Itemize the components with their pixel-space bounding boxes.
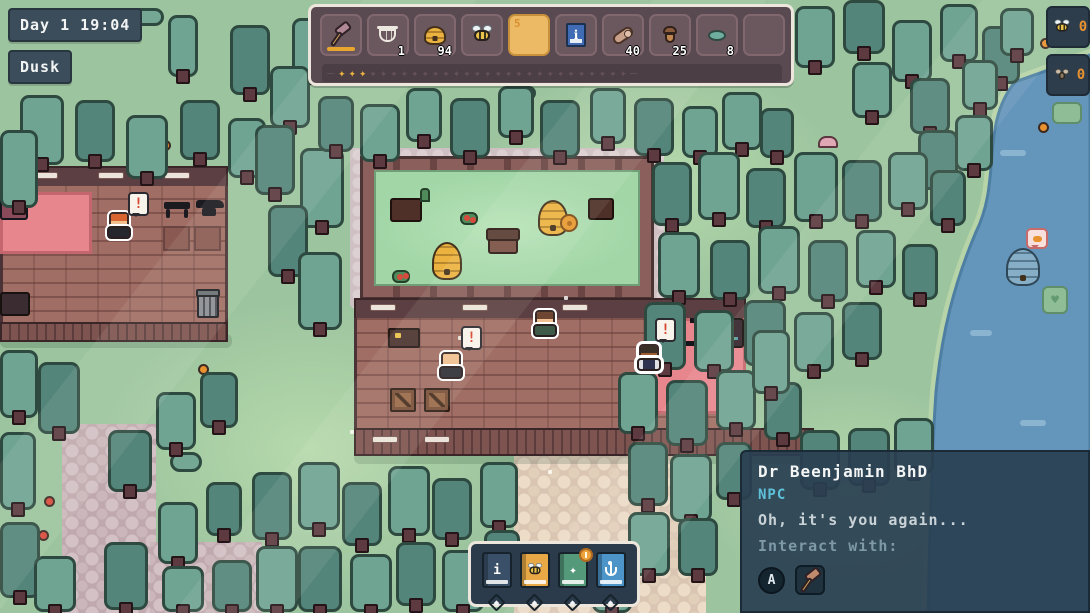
- bee-pip: ✦: [568, 67, 575, 79]
- cart[interactable]: [0, 292, 30, 316]
- table-icon[interactable]: [164, 202, 190, 209]
- tree: [498, 86, 534, 138]
- tree: [156, 392, 196, 450]
- trash-can[interactable]: [197, 292, 219, 318]
- tree: [694, 310, 734, 372]
- tree: [34, 556, 76, 612]
- tree: [808, 240, 848, 302]
- bee-pip: ✦: [401, 67, 408, 79]
- bee-icon: [469, 25, 495, 45]
- tree: [910, 78, 950, 134]
- bee-log-button[interactable]: 0: [1046, 6, 1090, 48]
- tree: [746, 168, 786, 228]
- tree: [350, 554, 392, 612]
- anvil-icon[interactable]: [196, 200, 224, 208]
- tree: [0, 350, 38, 418]
- tree: [256, 546, 298, 612]
- orange-flower: [1038, 122, 1049, 133]
- book-hotbar: i✦: [468, 541, 640, 607]
- wooden-beehive-box[interactable]: [488, 228, 518, 254]
- bee-pip: ✦: [390, 67, 397, 79]
- day-phase-badge: Dusk: [8, 50, 72, 84]
- bee-pip: ✦: [505, 67, 512, 79]
- keybind-diamond: [487, 593, 505, 611]
- item-count: 25: [673, 44, 687, 58]
- workbench[interactable]: [390, 198, 422, 222]
- info-glyph: i: [493, 563, 501, 578]
- tree: [666, 380, 708, 446]
- tree: [450, 98, 490, 158]
- tree: [794, 312, 834, 372]
- tree: [843, 0, 885, 54]
- tree: [716, 370, 756, 430]
- tree: [212, 560, 252, 612]
- item-count: 94: [438, 44, 452, 58]
- character-brownhair-npc[interactable]: [532, 310, 558, 342]
- table-leg: [166, 209, 170, 218]
- tree: [104, 542, 148, 610]
- bee-pip: ✦: [536, 67, 543, 79]
- tree: [200, 372, 238, 428]
- tree: [230, 25, 270, 95]
- tree: [0, 130, 38, 208]
- tree: [540, 100, 580, 158]
- info-book[interactable]: i: [482, 552, 512, 588]
- tree: [206, 482, 242, 536]
- toolbar-slot-6[interactable]: i: [555, 14, 597, 56]
- bee-pip: ✦: [359, 67, 366, 79]
- bee-pip: ✦: [411, 67, 418, 79]
- info-book-icon: i: [566, 23, 586, 47]
- tree: [888, 152, 928, 210]
- lily-pad: [1052, 102, 1082, 124]
- berry-bush[interactable]: [460, 212, 478, 225]
- desk[interactable]: [388, 328, 420, 348]
- info-book-slot: i: [482, 552, 512, 604]
- sparkle: [350, 430, 354, 434]
- tree: [902, 244, 938, 300]
- window-sill: [372, 436, 398, 443]
- selected-tool-underline: [327, 47, 355, 51]
- bee-pip: ✦: [422, 67, 429, 79]
- toolbar-slot-2[interactable]: 1: [367, 14, 409, 56]
- bench[interactable]: [588, 198, 614, 220]
- bee-pip: ✦: [599, 67, 606, 79]
- crate[interactable]: [390, 388, 416, 412]
- bee-pip: ✦: [609, 67, 616, 79]
- tree: [842, 160, 882, 222]
- tree: [360, 104, 400, 162]
- tree: [480, 462, 518, 528]
- tree: [760, 108, 794, 158]
- tree: [856, 230, 896, 288]
- magic-book-slot: ✦: [558, 552, 588, 604]
- tree: [842, 302, 882, 360]
- hammer-interact-button[interactable]: [795, 565, 825, 595]
- acorn-icon: [661, 24, 679, 46]
- tree: [590, 88, 626, 144]
- npc-tooltip: Dr Beenjamin BhD NPC Oh, it's you again.…: [740, 450, 1090, 613]
- bee-pip: ✦: [370, 67, 377, 79]
- bee-request-bubble: [1026, 228, 1048, 249]
- bee-pip: ✦: [463, 67, 470, 79]
- magic-book[interactable]: ✦: [558, 552, 588, 588]
- tree: [298, 462, 340, 530]
- tree: [270, 66, 310, 128]
- tree: [955, 115, 993, 171]
- hammer-icon: [798, 568, 824, 594]
- tree: [892, 20, 932, 82]
- bee-pip: ✦: [432, 67, 439, 79]
- bee-pip: ✦: [442, 67, 449, 79]
- window-sill: [370, 304, 396, 311]
- toolbar-slot-1[interactable]: [320, 14, 362, 56]
- tree: [1000, 8, 1034, 56]
- table-leg: [184, 209, 188, 218]
- item-count: 8: [727, 44, 734, 58]
- tree: [255, 125, 295, 195]
- gamepad-a-button[interactable]: A: [758, 567, 785, 594]
- hammer-icon: [328, 22, 354, 48]
- coin-badge: [579, 548, 593, 562]
- tree: [75, 100, 115, 162]
- progress-dash: —: [327, 66, 334, 80]
- red-flower: [44, 496, 55, 507]
- sparkle: [564, 296, 568, 300]
- berry-bush[interactable]: [392, 270, 410, 283]
- interact-label: Interact with:: [758, 537, 1072, 555]
- bee-progress-bar: —✦✦✦✦✦✦✦✦✦✦✦✦✦✦✦✦✦✦✦✦✦✦✦✦✦✦✦✦—: [322, 64, 782, 82]
- tree: [406, 88, 442, 142]
- tree: [794, 152, 838, 222]
- moth-icon: [1054, 68, 1071, 82]
- butterfly-log-button[interactable]: 0: [1046, 54, 1090, 96]
- bee-pip: ✦: [547, 67, 554, 79]
- tree: [682, 106, 718, 158]
- tree: [628, 442, 668, 506]
- floor-tile: [194, 226, 221, 251]
- sailing-book[interactable]: [596, 552, 626, 588]
- toolbar-slot-5[interactable]: 5: [508, 14, 550, 56]
- tree: [396, 542, 436, 606]
- speech-bubble-exclaim: !: [655, 318, 676, 342]
- tree: [930, 170, 966, 226]
- speech-bubble-exclaim: !: [128, 192, 149, 216]
- tree: [168, 15, 198, 77]
- npc-name: Dr Beenjamin BhD: [758, 462, 1072, 481]
- npc-type: NPC: [758, 487, 1072, 503]
- bee-pip: ✦: [453, 67, 460, 79]
- anchor-icon: [604, 563, 618, 577]
- clay-icon: [708, 30, 726, 41]
- bee-pip: ✦: [515, 67, 522, 79]
- item-count: 40: [626, 44, 640, 58]
- window-sill: [462, 304, 488, 311]
- bee-pip: ✦: [474, 67, 481, 79]
- slot-number: 5: [514, 17, 521, 30]
- tree: [388, 466, 430, 536]
- bee-icon: [1052, 20, 1072, 35]
- window-sill: [424, 436, 450, 443]
- character-dr-beenjamin[interactable]: [636, 344, 662, 376]
- game-screen: ♥ !: [0, 0, 1090, 613]
- progress-dash: —: [630, 66, 637, 80]
- bee-book-slot: [520, 552, 550, 604]
- toolbar-slot-3[interactable]: 94: [414, 14, 456, 56]
- item-count: 1: [398, 44, 405, 58]
- tree: [126, 115, 168, 179]
- tree: [252, 472, 292, 540]
- tree: [758, 226, 800, 294]
- bee-pip: ✦: [620, 67, 627, 79]
- tree: [670, 454, 712, 522]
- underwater-beehive[interactable]: [1006, 248, 1040, 286]
- sparkle-icon: ✦: [569, 563, 577, 578]
- tree: [710, 240, 750, 300]
- lily-pad-heart: ♥: [1042, 286, 1068, 314]
- bee-icon: [526, 563, 544, 577]
- log-count: 0: [1077, 67, 1085, 83]
- floor-tile: [163, 226, 190, 251]
- honey-flower[interactable]: [560, 214, 578, 232]
- sparkle: [548, 470, 552, 474]
- left-house-wall: [0, 322, 228, 342]
- skep-icon: [424, 26, 446, 45]
- anvil-base: [202, 208, 216, 216]
- bee-pip: ✦: [349, 67, 356, 79]
- toolbar-slot-10[interactable]: [743, 14, 785, 56]
- tree: [698, 152, 740, 220]
- toolbar-slot-7[interactable]: 40: [602, 14, 644, 56]
- tree: [108, 430, 152, 492]
- speech-bubble-exclaim: !: [461, 326, 482, 350]
- bee-pip: ✦: [338, 67, 345, 79]
- tree: [618, 372, 658, 434]
- sailing-book-slot: [596, 552, 626, 604]
- character-bald-npc[interactable]: [438, 352, 464, 384]
- tree: [795, 6, 835, 68]
- sprout: [420, 188, 430, 202]
- tree: [962, 60, 998, 110]
- tree: [678, 518, 718, 576]
- window-sill: [164, 172, 190, 179]
- bee-book[interactable]: [520, 552, 550, 588]
- log-count: 0: [1079, 19, 1087, 35]
- tree: [298, 252, 342, 330]
- npc-message: Oh, it's you again...: [758, 511, 1072, 529]
- bee-pip: ✦: [557, 67, 564, 79]
- window-sill: [98, 172, 124, 179]
- toolbar-slots: 1945i40258: [320, 14, 785, 56]
- tree: [298, 546, 342, 612]
- tree: [342, 482, 382, 546]
- day-time-badge: Day 1 19:04: [8, 8, 142, 42]
- bee-pip: ✦: [588, 67, 595, 79]
- bee-pip: ✦: [578, 67, 585, 79]
- tree: [852, 62, 892, 118]
- tree: [752, 330, 790, 394]
- tree: [318, 96, 354, 152]
- bee-pip: ✦: [526, 67, 533, 79]
- tree: [722, 92, 762, 150]
- tree: [162, 566, 204, 612]
- character-player[interactable]: [106, 212, 132, 244]
- tree: [652, 162, 692, 226]
- skep-beehive[interactable]: [432, 242, 462, 280]
- net-icon: [376, 23, 400, 47]
- tree: [658, 232, 700, 298]
- tree: [180, 100, 220, 160]
- tree: [432, 478, 472, 540]
- bee-pip: ✦: [484, 67, 491, 79]
- toolbar-slot-9[interactable]: 8: [696, 14, 738, 56]
- bee-pip: ✦: [380, 67, 387, 79]
- crate[interactable]: [424, 388, 450, 412]
- tree: [0, 432, 36, 510]
- toolbar-slot-8[interactable]: 25: [649, 14, 691, 56]
- bee-pip: ✦: [495, 67, 502, 79]
- tree: [158, 502, 198, 564]
- pink-mushroom: [818, 136, 838, 148]
- tree: [38, 362, 80, 434]
- tree: [634, 98, 674, 156]
- toolbar-slot-4[interactable]: [461, 14, 503, 56]
- window-sill: [562, 304, 588, 311]
- tree: [940, 4, 978, 62]
- main-toolbar: 1945i40258 —✦✦✦✦✦✦✦✦✦✦✦✦✦✦✦✦✦✦✦✦✦✦✦✦✦✦✦✦…: [308, 4, 794, 86]
